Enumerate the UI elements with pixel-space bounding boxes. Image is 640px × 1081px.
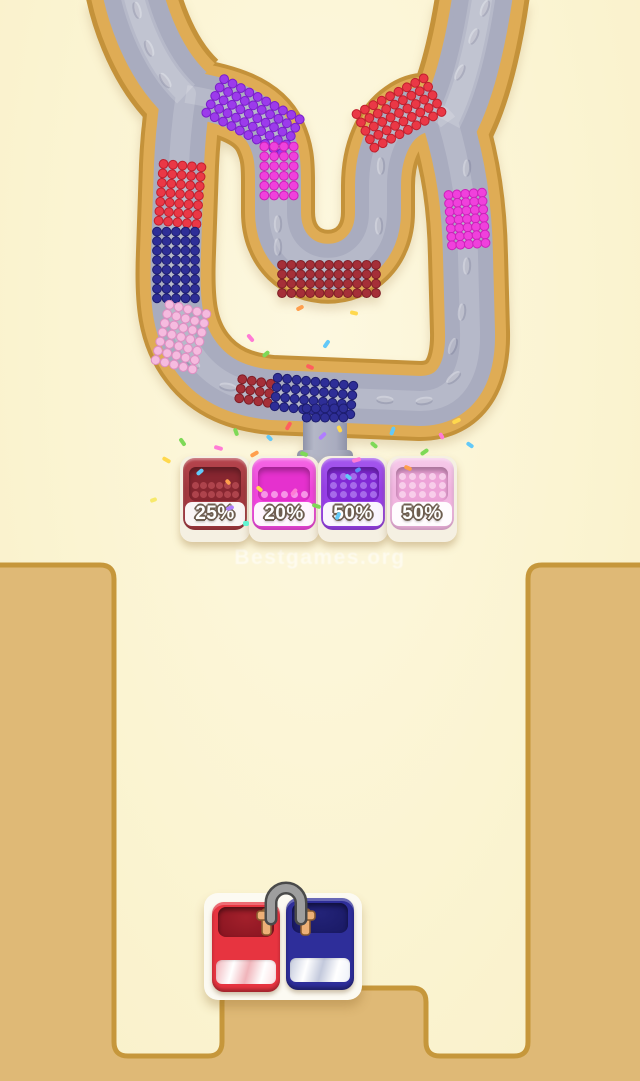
bin-body: 25% [183,458,247,530]
blue-block-glossy-stripe [290,958,350,982]
bin-maroon: 25% [183,456,247,540]
bin-pink: 50% [390,456,454,540]
bin-cavity [258,467,310,501]
bin-purple: 50% [321,456,385,540]
red-block-glossy-stripe [216,960,276,984]
bin-cavity [189,467,241,501]
bin-percent-label: 50% [402,503,442,525]
field-walls [0,565,640,1081]
bin-percent-badge: 25% [185,502,245,526]
bins-row: 25% 20% 50% [183,456,454,540]
bin-percent-badge: 50% [323,502,383,526]
bin-magenta: 20% [252,456,316,540]
pinned-block-pair[interactable] [204,880,362,1002]
bin-body: 50% [390,458,454,530]
bin-percent-label: 25% [195,503,235,525]
bin-body: 20% [252,458,316,530]
bin-percent-label: 20% [264,503,304,525]
bin-percent-badge: 20% [254,502,314,526]
bin-percent-badge: 50% [392,502,452,526]
bin-percent-label: 50% [333,503,373,525]
pin-clamp-icon[interactable] [254,869,318,933]
game-stage: Bestgames.org 25% 20% [0,0,640,1081]
bin-cavity [396,467,448,501]
watermark-text: Bestgames.org [234,546,405,570]
bin-body: 50% [321,458,385,530]
bin-cavity [327,467,379,501]
